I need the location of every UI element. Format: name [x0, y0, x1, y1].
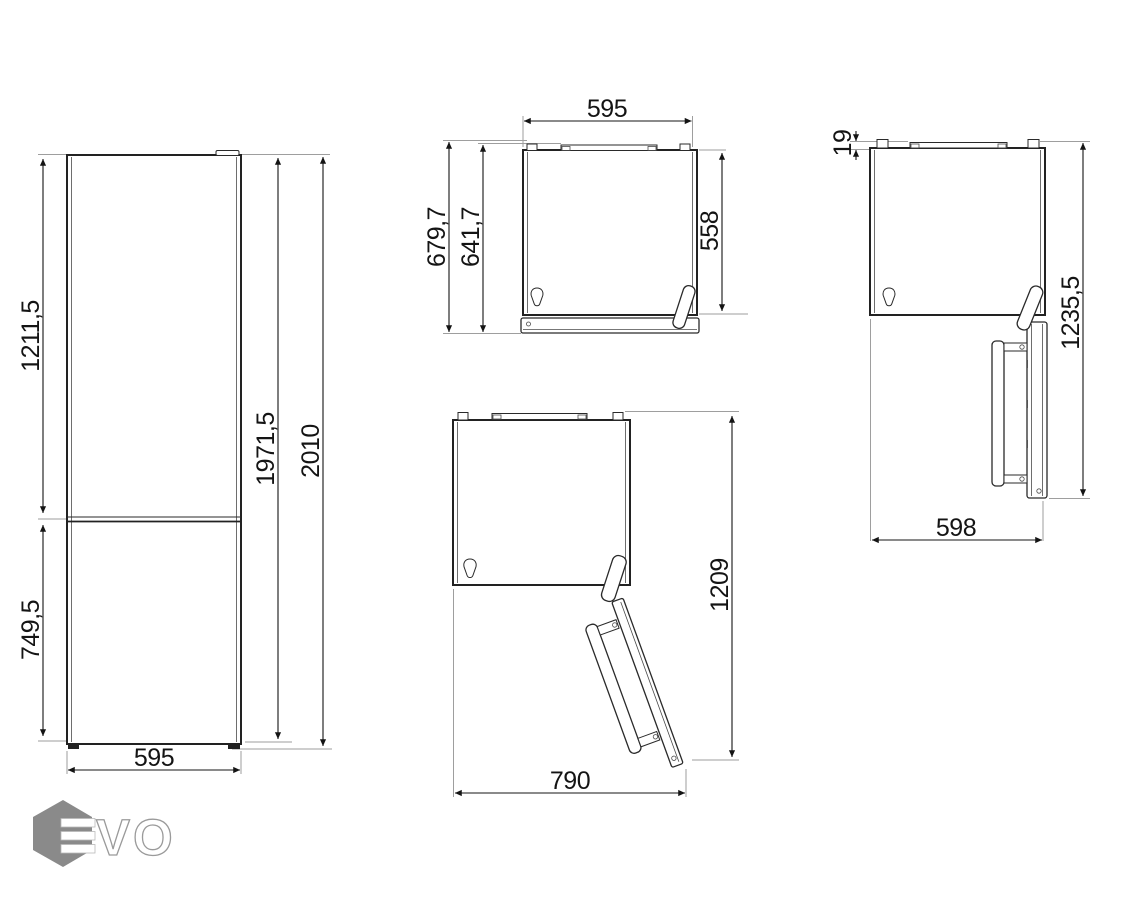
dim-label-depth-with-door: 641,7: [457, 207, 485, 267]
front-view: 1211,5 749,5 1971,5 2010 595: [17, 151, 332, 775]
rear-spacer-left: [527, 144, 537, 151]
technical-drawing-page: 1211,5 749,5 1971,5 2010 595: [0, 0, 1125, 900]
door-open-135: [580, 598, 683, 779]
rear-spacer-left: [458, 413, 468, 421]
dim-label-top-width: 595: [587, 95, 627, 123]
rear-spacer-right: [1028, 140, 1039, 149]
fridge-top-open-135-outline: [453, 413, 683, 780]
evo-logo-e-slot: [61, 819, 95, 828]
dim-label-depth-cabinet: 558: [696, 211, 724, 251]
top-view-closed: 595 679,7 641,7 558: [423, 95, 748, 334]
handle-stub-top: [597, 620, 619, 635]
dim-label-front-width: 595: [134, 744, 174, 772]
rear-spacer-right: [613, 413, 623, 421]
evo-logo-e-slot: [61, 832, 95, 841]
rear-spacer-right: [680, 144, 690, 151]
foot-right: [228, 744, 240, 749]
top-view-open-135: 1209 790: [453, 412, 739, 798]
evo-logo: VO: [33, 800, 176, 867]
hinge-cover-top: [216, 151, 239, 156]
rear-panel: [561, 145, 657, 151]
door-open-90: [992, 284, 1047, 498]
rear-spacer-left: [877, 140, 888, 149]
fridge-top-closed-outline: [521, 144, 699, 333]
dim-label-depth-door-open-135: 1209: [706, 558, 734, 612]
dim-label-lower-door-height: 749,5: [17, 600, 45, 660]
handle-stub-top: [1004, 343, 1027, 351]
dim-label-width-door-open-135: 790: [550, 767, 590, 795]
handle-stub-bottom: [1004, 475, 1027, 483]
dim-label-width-door-open-90: 598: [936, 514, 976, 542]
handle-stub-bottom: [638, 732, 660, 747]
rear-panel: [910, 143, 1007, 149]
dim-label-total-height: 2010: [297, 424, 325, 478]
dimension-drawing-svg: 1211,5 749,5 1971,5 2010 595: [0, 0, 1125, 900]
fridge-front-outline: [67, 151, 241, 750]
rear-panel: [492, 414, 587, 420]
foot-left: [68, 744, 79, 749]
dim-label-upper-door-height: 1211,5: [17, 300, 45, 372]
evo-logo-vo-text: VO: [96, 809, 176, 866]
top-view-open-90: 19 1235,5 598: [829, 130, 1090, 542]
dim-label-rear-spacer: 19: [829, 130, 857, 157]
dim-label-cabinet-height: 1971,5: [252, 412, 280, 485]
door-handle-bar: [992, 341, 1004, 486]
dim-label-depth-door-open-90: 1235,5: [1057, 276, 1085, 349]
evo-logo-e-slot: [61, 845, 95, 854]
door-closed: [521, 318, 699, 333]
dim-label-depth-with-handle: 679,7: [423, 207, 451, 267]
fridge-top-open-90-outline: [870, 140, 1047, 499]
